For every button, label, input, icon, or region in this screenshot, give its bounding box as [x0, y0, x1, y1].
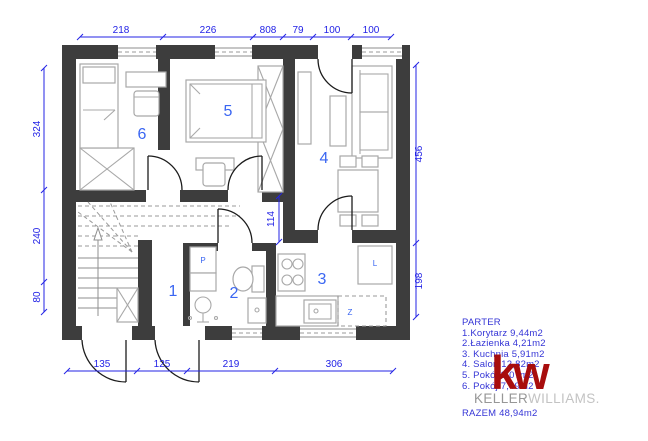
dim-left-2: 240 [32, 227, 43, 244]
furniture-room4 [298, 66, 392, 226]
kitchen-counter-sink [276, 296, 338, 326]
dimension-left: 324 240 80 [32, 65, 47, 315]
washing-machine [190, 247, 216, 291]
floor-plan-drawing: 1 2 3 4 5 6 P L Z 218 226 808 79 100 100… [0, 0, 648, 441]
dim-top-4: 79 [292, 25, 304, 36]
vanity [248, 298, 266, 323]
room-number-1: 1 [169, 283, 178, 300]
room-number-2: 2 [230, 285, 239, 302]
room-number-6: 6 [138, 126, 147, 143]
room-number-5: 5 [224, 103, 233, 120]
room-number-3: 3 [318, 271, 327, 288]
window-bottom-2 [300, 326, 356, 340]
dim-top-3: 808 [260, 25, 277, 36]
dim-top-6: 100 [363, 25, 380, 36]
dishwasher [338, 296, 386, 326]
dim-top-2: 226 [200, 25, 217, 36]
dim-bottom-3: 219 [223, 359, 240, 370]
dim-right-2: 198 [414, 272, 425, 289]
dimension-right: 456 198 [413, 62, 425, 320]
dimension-bottom: 135 125 219 306 [64, 359, 396, 374]
window-top-2 [215, 45, 252, 59]
dim-interior-wall: 114 [266, 211, 277, 227]
window-top-3 [362, 45, 402, 59]
stairs-up-arrow [94, 228, 102, 316]
dim-right-1: 456 [414, 145, 425, 162]
floor-plan-sheet: 1 2 3 4 5 6 P L Z 218 226 808 79 100 100… [0, 0, 648, 441]
dim-bottom-2: 125 [154, 359, 171, 370]
legend-total: RAZEM 48,94m2 [462, 408, 537, 419]
pedestal-sink [189, 297, 218, 322]
stove [278, 254, 305, 291]
dim-top-1: 218 [113, 25, 130, 36]
door-room6 [148, 156, 182, 190]
dimension-top: 218 226 808 79 100 100 [77, 25, 394, 40]
door-bathroom [218, 209, 252, 243]
fridge-label: L [373, 259, 378, 268]
balcony-door [318, 59, 352, 93]
dim-left-3: 80 [32, 291, 43, 303]
closet-by-stairs [117, 288, 138, 322]
dishwasher-label: Z [348, 308, 353, 317]
kitchen-fixtures [276, 246, 392, 326]
dim-bottom-4: 306 [326, 359, 343, 370]
dim-bottom-1: 135 [94, 359, 111, 370]
room-number-4: 4 [320, 150, 329, 167]
legend-title: PARTER [462, 318, 546, 329]
furniture-room5 [186, 80, 266, 186]
furniture-room6 [80, 64, 166, 148]
kw-logo: kw [491, 349, 546, 396]
dim-left-1: 324 [32, 120, 43, 137]
dim-top-5: 100 [324, 25, 341, 36]
washing-machine-label: P [200, 256, 205, 265]
wardrobe-room6 [80, 148, 134, 190]
window-bottom-1 [232, 326, 262, 340]
window-top-1 [118, 45, 156, 59]
